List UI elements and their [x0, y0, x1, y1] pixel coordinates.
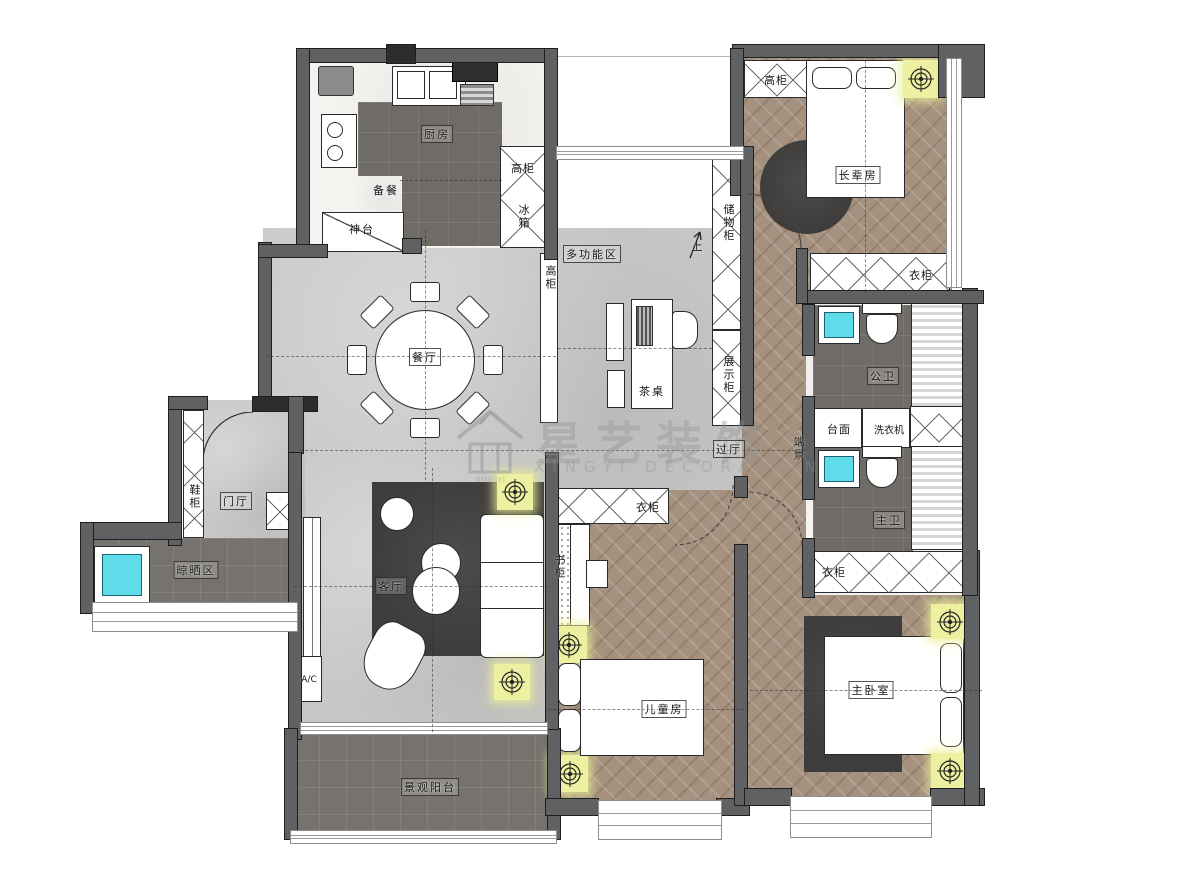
fixture-label-master-wardrobe: 衣柜	[822, 564, 846, 580]
bay-window	[598, 800, 722, 840]
dining-chair	[347, 345, 367, 375]
pillow	[812, 67, 852, 89]
side-chair	[606, 303, 624, 361]
fixture-label-fridge: 冰箱	[515, 204, 531, 230]
svg-text:XINGYI: XINGYI	[475, 476, 505, 486]
fixture-label-washer: 洗衣机	[874, 422, 904, 437]
shoe-cabinet	[183, 410, 204, 538]
toilet-tank	[862, 446, 902, 458]
wall	[258, 242, 272, 410]
room-label-public-bath: 公卫	[867, 367, 899, 385]
ceiling-light-icon	[556, 632, 582, 658]
children-side-table	[586, 560, 608, 588]
wall	[168, 396, 208, 410]
master-bath-sink	[818, 450, 860, 488]
brand-logo-icon: XINGYI	[450, 402, 530, 486]
wall	[80, 522, 182, 540]
tv-cabinet	[303, 517, 321, 659]
wall	[545, 798, 599, 816]
kitchen-corner-shelf	[318, 66, 354, 96]
pillow	[558, 709, 581, 752]
wall	[962, 288, 978, 596]
coffee-table	[412, 567, 460, 615]
children-door-arc	[673, 483, 737, 547]
fixture-label-shoe-cabinet: 鞋柜	[186, 484, 202, 510]
fixture-label-prep: 备餐	[373, 182, 399, 198]
axis-line	[432, 468, 433, 732]
wall	[402, 238, 422, 254]
room-label-entry: 门厅	[220, 492, 252, 510]
exterior-ac-platform	[556, 56, 744, 148]
fixture-label-corridor-tall-cabinet: 高柜	[542, 265, 558, 291]
window	[556, 146, 744, 160]
room-label-multifunction: 多功能区	[563, 245, 621, 263]
utility-cabinet	[910, 406, 966, 448]
ceiling-light	[494, 664, 530, 700]
wall	[734, 544, 748, 806]
wall	[80, 522, 94, 614]
sink-basin	[824, 312, 854, 338]
burner	[327, 145, 343, 161]
elder-door-arc	[745, 192, 805, 252]
fixture-label-up: 上	[692, 238, 705, 254]
wall	[252, 396, 318, 412]
room-label-passage: 过厅	[713, 440, 745, 458]
floor-plan: XINGYI 星艺装饰 XINGYI DECORATION 厨房 备餐 神台 高…	[0, 0, 1200, 895]
pillow	[856, 67, 896, 89]
ceiling-light	[931, 753, 968, 789]
side-table	[380, 497, 414, 531]
balcony-railing	[290, 830, 557, 844]
sliding-door	[300, 722, 548, 735]
room-label-master-bath: 主卫	[873, 511, 905, 529]
bay-window	[790, 796, 932, 838]
master-door-arc	[748, 490, 806, 548]
desk-laptop	[636, 306, 653, 346]
ceiling-light-icon	[937, 609, 963, 635]
fixture-label-display-cabinet: 展示柜	[720, 356, 736, 395]
wall	[284, 728, 298, 840]
wall	[802, 304, 815, 356]
wall	[386, 44, 416, 64]
fixture-label-elder-wardrobe: 衣柜	[909, 267, 933, 283]
ceiling-light-icon	[908, 66, 934, 92]
wall	[288, 452, 302, 740]
stove	[321, 114, 357, 168]
entry-door-arc	[203, 412, 255, 464]
wall	[545, 452, 559, 730]
master-shower	[911, 446, 965, 550]
pillow	[940, 697, 962, 747]
public-bath-sink	[818, 306, 860, 344]
sink-basin	[102, 554, 142, 596]
wall	[258, 244, 328, 258]
fixture-label-end-view: 端景	[790, 436, 806, 462]
pillow	[558, 663, 581, 706]
kitchen-appliance	[460, 84, 494, 106]
room-label-children: 儿童房	[642, 700, 687, 718]
fixture-label-children-wardrobe: 衣柜	[636, 499, 660, 515]
fixture-label-ac: A/C	[301, 675, 316, 685]
room-label-balcony: 景观阳台	[401, 778, 459, 796]
ceiling-light	[903, 60, 939, 98]
fixture-label-elder-tall-cabinet: 高柜	[764, 72, 788, 88]
ceiling-light-icon	[937, 758, 963, 784]
wall	[740, 146, 754, 426]
room-label-master: 主卧室	[849, 681, 894, 699]
fixture-label-counter: 台面	[827, 421, 851, 437]
wall	[296, 48, 558, 63]
burner	[327, 122, 343, 138]
axis-line	[558, 348, 712, 349]
desk-chair	[672, 311, 698, 349]
wall	[744, 788, 792, 806]
wall	[296, 48, 310, 250]
wall	[547, 728, 561, 840]
sink-basin	[824, 456, 854, 482]
ceiling-light	[931, 604, 968, 639]
room-label-drying: 晾晒区	[174, 561, 219, 579]
pillow	[940, 643, 962, 693]
side-chair	[607, 370, 625, 408]
ceiling-light-icon	[499, 669, 525, 695]
sink-basin-left	[397, 71, 425, 99]
fixture-label-tea-table: 茶桌	[639, 383, 665, 399]
fixture-label-kitchen-tall-cabinet: 高柜	[511, 160, 535, 176]
wall	[804, 290, 984, 304]
dining-chair	[483, 345, 503, 375]
window	[92, 602, 298, 632]
drying-sink	[94, 546, 150, 604]
wall	[288, 396, 304, 454]
wall	[796, 248, 808, 304]
room-label-living: 客厅	[375, 577, 407, 595]
room-label-dining: 餐厅	[409, 348, 441, 366]
room-label-kitchen: 厨房	[421, 125, 453, 143]
axis-line	[400, 180, 502, 181]
fixture-label-altar: 神台	[349, 221, 375, 237]
public-shower	[911, 300, 965, 408]
window	[946, 58, 962, 288]
axis-line	[294, 586, 548, 587]
fixture-label-storage-cabinet: 储物柜	[720, 204, 736, 243]
watermark-en: XINGYI DECORATION	[534, 458, 824, 476]
room-label-elder: 长辈房	[836, 166, 881, 184]
fixture-label-bookcase: 书柜	[551, 554, 567, 580]
